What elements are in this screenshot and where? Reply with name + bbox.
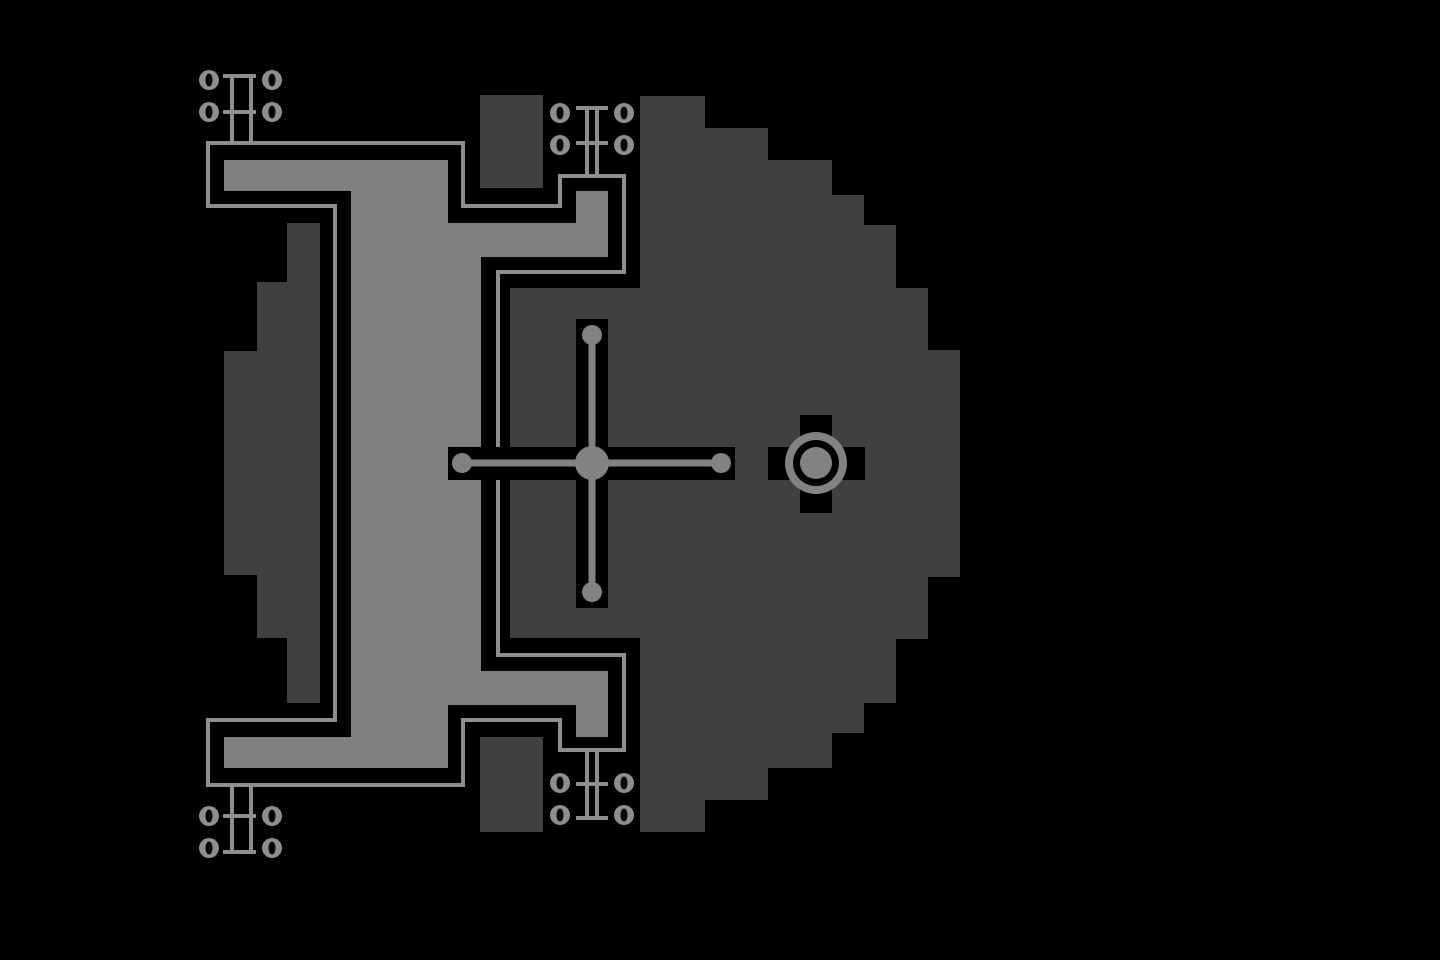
screenshot-canvas <box>0 0 1440 960</box>
hinge-stem <box>230 785 234 854</box>
spoke-end-cap[interactable] <box>582 582 602 602</box>
gear-teeth-left <box>224 223 320 703</box>
hinge-bolt-slot <box>557 777 564 790</box>
hinge-bar <box>576 782 608 786</box>
hinge-bolt-slot <box>621 809 628 822</box>
hinge-bar <box>576 106 608 110</box>
spoke-end-cap[interactable] <box>711 453 731 473</box>
hinge-bolt-slot <box>206 810 213 823</box>
hinge-bolt-slot <box>206 106 213 119</box>
hinge-bottom-left <box>199 785 282 858</box>
spoke-end-cap[interactable] <box>452 453 472 473</box>
hub-center-cap[interactable] <box>800 447 832 479</box>
spoke-end-cap[interactable] <box>582 325 602 345</box>
hinge-bolt-slot <box>269 106 276 119</box>
hinge-bar <box>223 814 256 818</box>
hinge-top-left <box>199 70 282 143</box>
hinge-bar <box>223 110 256 114</box>
hinge-bolt-slot <box>269 74 276 87</box>
hinge-bolt-slot <box>557 139 564 152</box>
hinge-top-center <box>550 103 634 176</box>
vault-door-scene <box>0 0 1440 960</box>
hinge-bottom-center <box>550 750 634 825</box>
hinge-stem <box>230 74 234 143</box>
hinge-stem <box>249 74 253 143</box>
hinge-bolt-slot <box>557 107 564 120</box>
hinge-bar <box>576 141 608 145</box>
hinge-bar <box>223 74 256 78</box>
hinge-bolt-slot <box>557 809 564 822</box>
hinge-bolt-slot <box>269 810 276 823</box>
hinge-bolt-slot <box>621 139 628 152</box>
notch-block-top <box>480 95 543 188</box>
gear-teeth-shape <box>224 223 320 703</box>
hinge-bolt-slot <box>621 777 628 790</box>
notch-block-bottom <box>480 737 543 832</box>
hinge-bolt-slot <box>621 107 628 120</box>
hinge-stem <box>249 785 253 854</box>
hinge-bolt-slot <box>206 74 213 87</box>
hinge-bolt-slot <box>206 842 213 855</box>
hinge-bar <box>576 816 608 820</box>
hinge-bolt-slot <box>269 842 276 855</box>
hinge-bar <box>223 850 256 854</box>
spoke-center-cap[interactable] <box>575 446 609 480</box>
